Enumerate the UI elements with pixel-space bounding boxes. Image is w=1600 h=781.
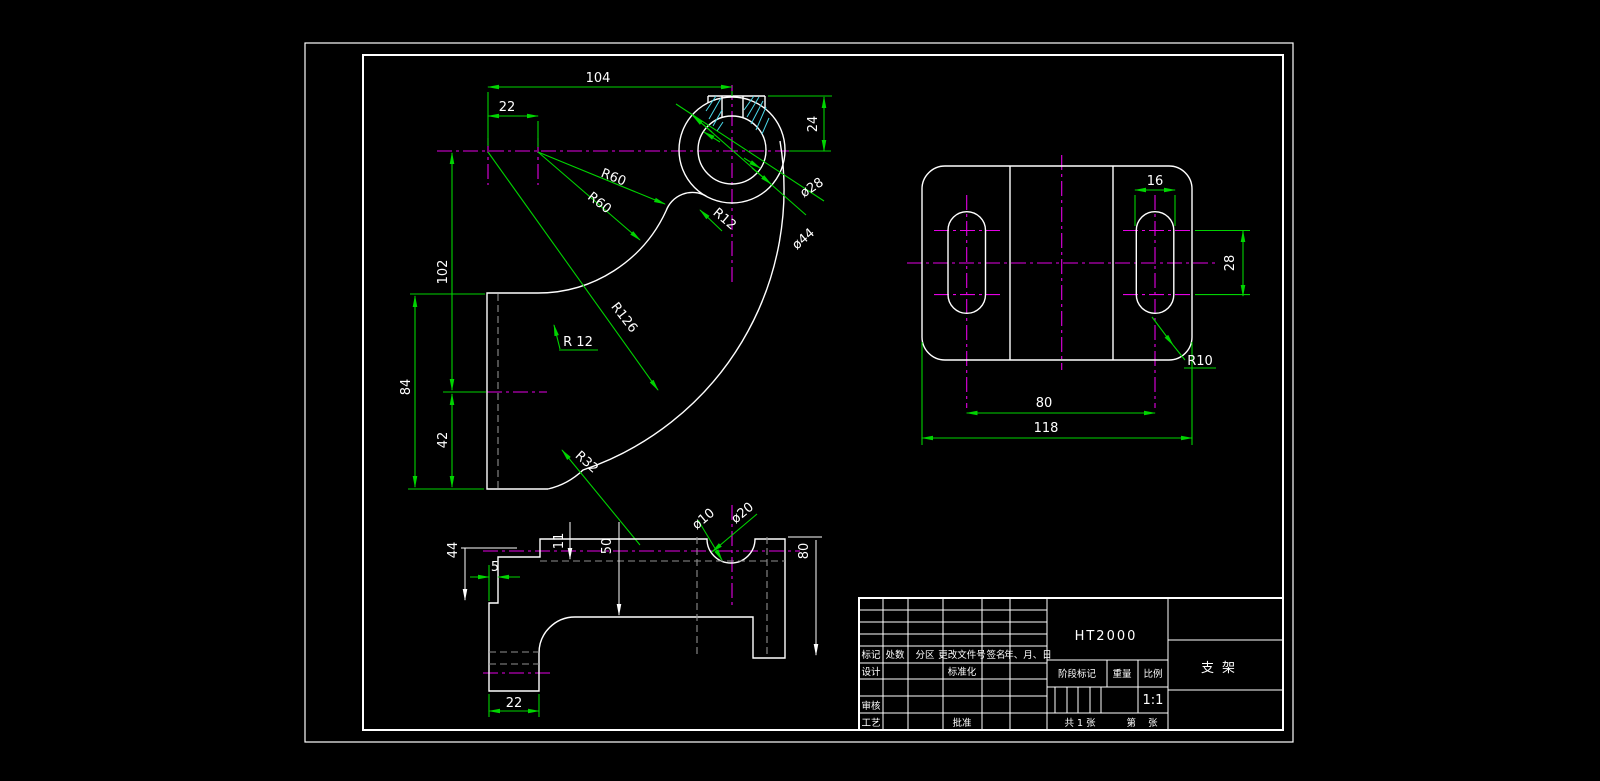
front-view: 104 22 24 102 84 42 R60 R60 R12 R 12 R12… bbox=[399, 71, 832, 545]
tb-label-scale: 比例 bbox=[1143, 668, 1162, 680]
tb-label-change-doc: 更改文件号 bbox=[938, 649, 986, 661]
top-view: 16 28 80 118 R10 bbox=[907, 155, 1250, 445]
tb-part-name: 支架 bbox=[1201, 661, 1243, 676]
dim-22: 22 bbox=[499, 100, 516, 115]
dim-84: 84 bbox=[399, 379, 414, 396]
tb-label-approve: 批准 bbox=[952, 717, 972, 729]
front-outline bbox=[487, 96, 785, 489]
tb-label-stage-mark: 阶段标记 bbox=[1058, 668, 1097, 680]
bottom-outline bbox=[489, 537, 785, 691]
tb-label-signature: 签名 bbox=[986, 649, 1005, 661]
dim-104: 104 bbox=[586, 71, 611, 86]
label-r126: R126 bbox=[607, 300, 640, 336]
tb-sheets-total: 共 1 张 bbox=[1064, 718, 1096, 729]
label-r10: R10 bbox=[1187, 354, 1213, 369]
hidden-lines bbox=[489, 537, 785, 664]
tb-sheet-no: 第 张 bbox=[1126, 717, 1158, 729]
dim-80-bottom: 80 bbox=[797, 543, 812, 560]
label-dia20: ø20 bbox=[729, 500, 757, 527]
tb-material: HT2000 bbox=[1075, 629, 1138, 644]
tb-label-standardization: 标准化 bbox=[948, 666, 977, 678]
tb-label-process: 工艺 bbox=[861, 718, 880, 729]
front-centerlines bbox=[437, 85, 830, 392]
top-centerlines bbox=[907, 155, 1217, 408]
dim-102: 102 bbox=[436, 260, 451, 285]
label-dia44: ø44 bbox=[790, 226, 818, 253]
label-r60-2: R60 bbox=[584, 189, 613, 217]
tb-label-design: 设计 bbox=[861, 666, 881, 678]
dim-28: 28 bbox=[1223, 255, 1238, 272]
dim-16: 16 bbox=[1147, 174, 1164, 189]
cad-drawing-canvas: 104 22 24 102 84 42 R60 R60 R12 R 12 R12… bbox=[0, 0, 1600, 781]
dim-22-bottom: 22 bbox=[506, 696, 523, 711]
tb-label-count: 处数 bbox=[885, 649, 905, 661]
label-r32: R32 bbox=[572, 448, 601, 476]
top-dimensions: 16 28 80 118 R10 bbox=[922, 174, 1250, 445]
label-r60-1: R60 bbox=[599, 166, 628, 189]
label-r12-body: R 12 bbox=[563, 335, 593, 350]
bottom-dimensions: 44 5 11 50 80 22 ø10 ø20 bbox=[446, 500, 822, 717]
label-dia10: ø10 bbox=[690, 506, 718, 533]
dim-42: 42 bbox=[436, 432, 451, 449]
label-r12-boss: R12 bbox=[710, 205, 739, 233]
dim-24: 24 bbox=[806, 116, 821, 133]
dim-50: 50 bbox=[600, 538, 615, 555]
dim-80-top: 80 bbox=[1036, 396, 1053, 411]
dim-5: 5 bbox=[491, 560, 499, 575]
dim-44: 44 bbox=[446, 542, 461, 559]
bottom-view: 44 5 11 50 80 22 ø10 ø20 bbox=[446, 500, 822, 717]
tb-label-zone: 分区 bbox=[915, 650, 935, 661]
section-hatch bbox=[706, 96, 769, 134]
tb-label-weight: 重量 bbox=[1112, 668, 1132, 680]
tb-scale-value: 1:1 bbox=[1143, 693, 1164, 708]
front-dimensions: 104 22 24 102 84 42 R60 R60 R12 R 12 R12… bbox=[399, 71, 832, 545]
label-dia28: ø28 bbox=[798, 175, 827, 201]
title-block: 标记 处数 分区 更改文件号 签名 年、月、日 设计 标准化 审核 工艺 批准 … bbox=[859, 598, 1283, 730]
tb-label-date: 年、月、日 bbox=[1004, 649, 1052, 661]
tb-label-audit: 审核 bbox=[861, 700, 881, 712]
dim-11: 11 bbox=[552, 533, 567, 550]
dim-118: 118 bbox=[1034, 421, 1059, 436]
tb-label-mark: 标记 bbox=[861, 649, 881, 661]
